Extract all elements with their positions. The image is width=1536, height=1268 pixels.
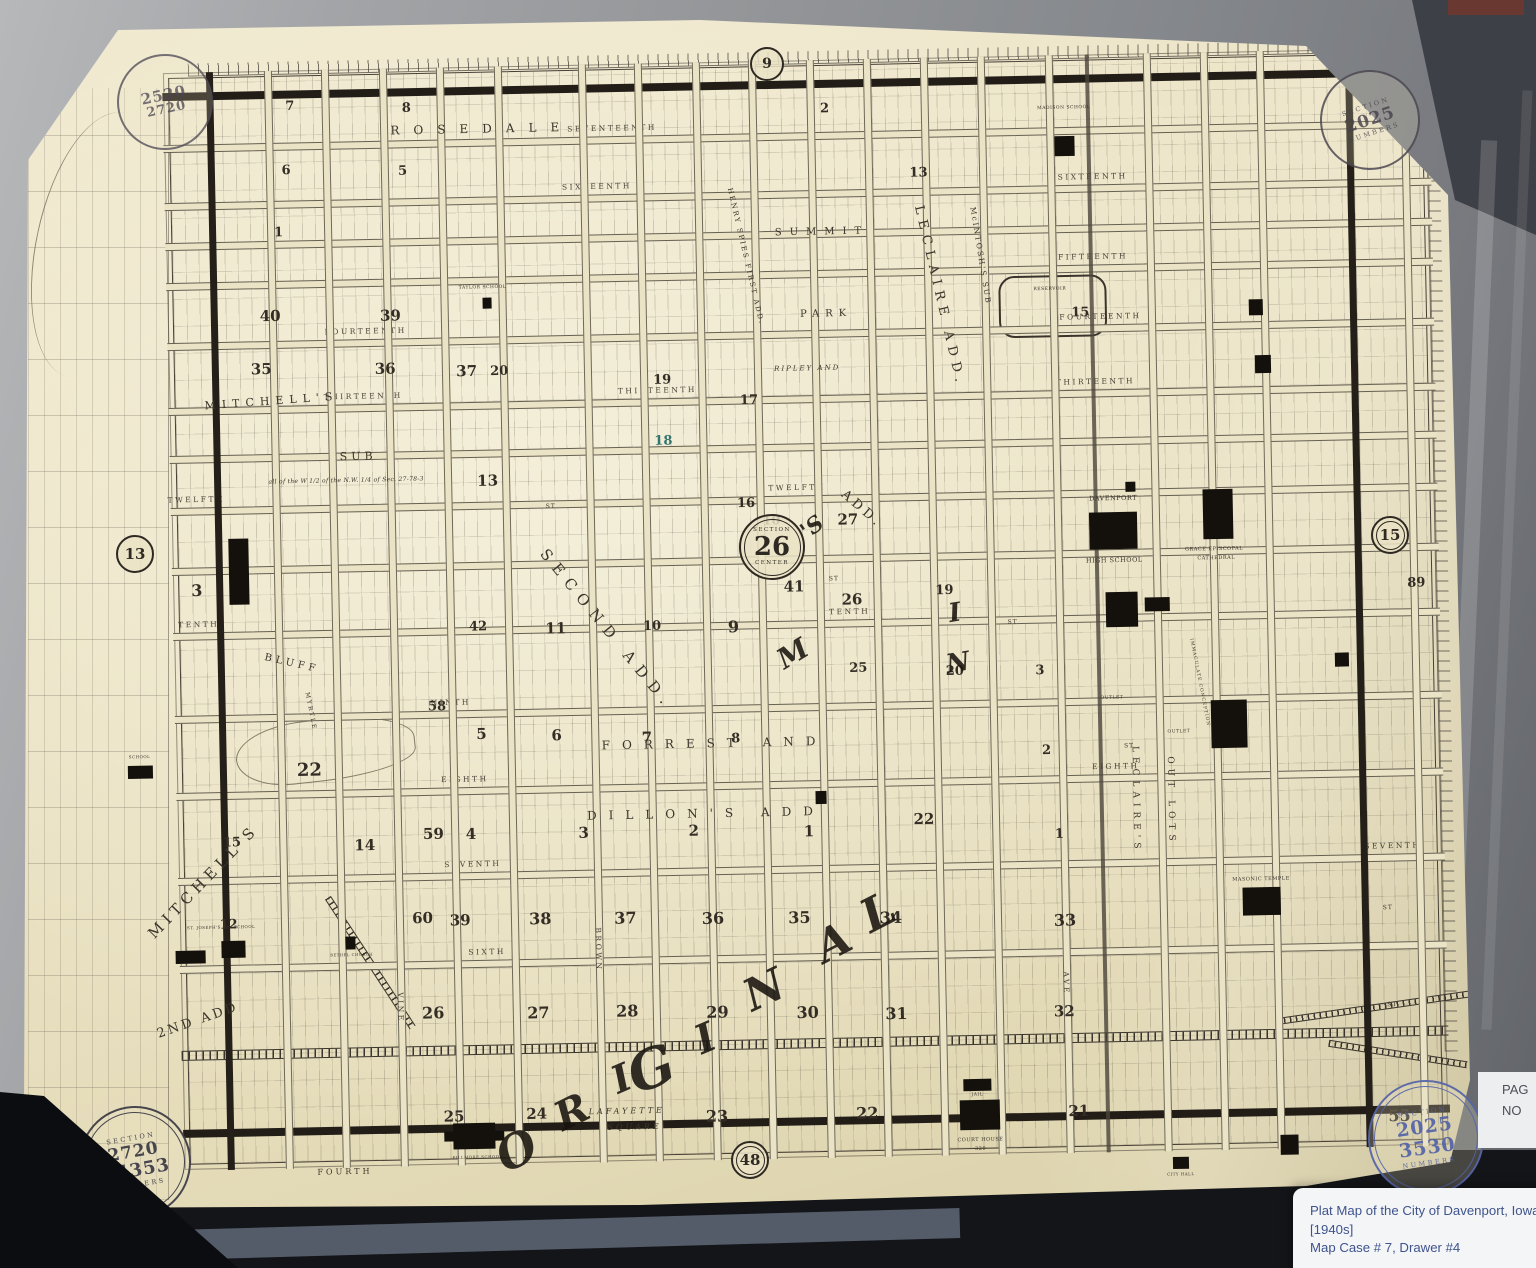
block-number: 8 [402, 100, 411, 115]
block-number: 39 [450, 911, 471, 929]
block-number: 9 [728, 617, 740, 636]
madison-school [1054, 136, 1074, 156]
section-marker-48: 48 [731, 1141, 769, 1179]
block-number: 20 [490, 364, 508, 379]
addition-label: IMMACULATE CONCEPTION [1188, 638, 1210, 727]
ornamental-script-letter: N [736, 959, 794, 1022]
building-label: CATHEDRAL [1197, 554, 1235, 561]
edge-label-line1: PAG [1502, 1080, 1536, 1101]
block-number: 6 [281, 163, 290, 178]
addition-label: SUMMIT [775, 225, 870, 238]
block-number: 27 [527, 1003, 550, 1022]
section-marker-9: 9 [750, 47, 784, 81]
street-minor [634, 63, 664, 1161]
street-minor [181, 1026, 1448, 1061]
addition-label: HENRY SPIES FIRST ADD. [726, 187, 766, 326]
marker-value: 13 [125, 547, 146, 562]
block-number: 42 [469, 620, 487, 635]
building-label: HIGH SCHOOL [1086, 556, 1143, 565]
block-number: 2 [688, 821, 699, 839]
street-label: SIXTH [468, 947, 506, 957]
block-number: 25 [849, 661, 867, 676]
block-number: 2 [1042, 743, 1051, 758]
section-marker-26: SECTION26CENTER [739, 514, 805, 580]
block-number: 28 [616, 1001, 639, 1020]
block-number: 59 [423, 824, 444, 842]
block-number: 13 [909, 165, 927, 180]
grace-episcopal-cathedral [1203, 488, 1234, 539]
addition-label: ST [546, 503, 556, 510]
block-number: 22 [297, 760, 322, 781]
block-number: 5 [476, 724, 487, 742]
street-minor [1345, 49, 1374, 1147]
building-label: DAVENPORT [1089, 494, 1137, 503]
street-minor [1256, 50, 1286, 1148]
addition-label: FOURTH [317, 1166, 372, 1176]
addition-label: ROSEDALE [390, 120, 573, 138]
street-label: AVE [1062, 972, 1071, 996]
catalog-label-card: Plat Map of the City of Davenport, Iowa … [1293, 1188, 1536, 1268]
block-number: 37 [614, 909, 637, 928]
street-sixteenth [164, 178, 1431, 211]
partial-edge-label: PAG NO [1478, 1072, 1536, 1148]
block-number: 29 [706, 1002, 729, 1021]
addition-label: all of the W 1/2 of the N.W. 1/4 of Sec.… [268, 475, 423, 485]
building-label: SCHOOL [129, 754, 151, 759]
building-label: ST. JOSEPH'S CH. SCHOOL [187, 923, 255, 929]
block-number: 13 [477, 471, 498, 489]
block-number: 36 [375, 360, 396, 378]
building-label: COURT HOUSE [957, 1137, 1003, 1144]
street-tenth [173, 607, 1440, 640]
section-marker-13: 13 [116, 535, 154, 573]
br-church [1281, 1135, 1299, 1155]
card-location: Map Case # 7, Drawer #4 [1310, 1239, 1536, 1258]
addition-label: ST [1124, 742, 1134, 749]
card-title: Plat Map of the City of Davenport, Iowa [1310, 1202, 1536, 1221]
addition-label: SQUARE [607, 1122, 661, 1132]
addition-label: SUB [340, 449, 377, 463]
street-label: BROWN [594, 927, 604, 971]
marker-value: 9 [762, 57, 772, 71]
map-paper: SEVENTEENTHSIXTEENTHSIXTEENTHFIFTEENTHFO… [0, 0, 1536, 1268]
street-minor [692, 62, 722, 1160]
block-number: 35 [788, 907, 811, 926]
ornamental-script-letter: M [771, 631, 815, 675]
block-number: 32 [1054, 1002, 1075, 1020]
street-minor [183, 1104, 1450, 1137]
block-number: 35 [251, 360, 272, 378]
block-number: 39 [380, 306, 401, 324]
jail [963, 1078, 991, 1091]
hs-annex [1125, 482, 1135, 492]
mitchell-building [228, 539, 249, 605]
street-seventeenth [163, 120, 1430, 153]
archive-photo: SEVENTEENTHSIXTEENTHSIXTEENTHFIFTEENTHFO… [0, 0, 1536, 1268]
sm-hall [1145, 597, 1170, 611]
addition-label: PARK [800, 308, 852, 320]
ornamental-script-letter: A [807, 912, 861, 973]
block-number: 7 [285, 99, 294, 114]
street-minor [321, 69, 351, 1167]
immaculate-conception [1211, 700, 1248, 749]
street-minor [1400, 48, 1430, 1146]
addition-label: ST [829, 575, 839, 582]
marker-ring [744, 519, 801, 576]
block-number: 60 [412, 909, 433, 927]
eighth-st-church [816, 791, 827, 804]
edge-label-line2: NO [1502, 1101, 1536, 1122]
street-fifteenth [166, 258, 1433, 291]
block-number: 21 [1068, 1102, 1089, 1120]
marker-ring [736, 1146, 765, 1175]
street-label: FIFTEENTH [1058, 252, 1128, 262]
building-label: 320 [975, 1146, 986, 1152]
street-minor [436, 67, 466, 1165]
block-number: 22 [856, 1104, 879, 1123]
block-number: 2 [820, 102, 829, 117]
addition-label: OUTLET [1167, 729, 1190, 734]
street-minor [977, 56, 1007, 1154]
block-number: 6 [551, 726, 562, 744]
building-label: CITY HALL [1167, 1171, 1195, 1177]
addition-label: OUTLET [1100, 695, 1123, 700]
block-number: 23 [706, 1107, 729, 1126]
street-label: SIXTEENTH [562, 181, 632, 191]
block-number: 19 [653, 373, 671, 388]
addition-label: ST [1383, 904, 1393, 911]
block-number: 40 [260, 306, 281, 324]
addition-label: RIPLEY AND [774, 363, 840, 372]
addition-label: OUT LOTS [1164, 756, 1176, 846]
addition-label: ST [1008, 618, 1018, 625]
davenport-high-school [1089, 512, 1138, 550]
building-label: MADISON SCHOOL [1037, 105, 1090, 111]
marker-ring [1376, 521, 1405, 550]
right-church-1 [1249, 299, 1263, 315]
building-label: JAIL [971, 1092, 983, 1097]
school-annex [1106, 591, 1139, 627]
st-josephs-church [175, 951, 205, 965]
street-label: SEVENTH [1364, 840, 1421, 850]
street-label: EIGHTH [441, 774, 489, 784]
block-number: 1 [1055, 826, 1064, 841]
city-hall [1172, 1157, 1188, 1169]
block-number: 58 [428, 699, 446, 714]
addition-label: FORREST AND [602, 734, 828, 753]
block-number: 5 [398, 163, 407, 178]
block-number: 11 [545, 619, 566, 637]
building-label: FILLMORE SCHOOL [452, 1154, 502, 1160]
block-number: 3 [1035, 663, 1044, 678]
section-marker-15: 15 [1371, 516, 1409, 554]
block-number: 19 [935, 583, 953, 598]
block-number: 4 [466, 825, 477, 843]
addition-label: LECLAIRE'S [1129, 746, 1141, 854]
street-label: THIRTEENTH [1056, 376, 1135, 387]
block-number: 89 [1407, 576, 1425, 591]
block-number: 18 [654, 434, 672, 449]
street-label: VINE [396, 992, 406, 1023]
block-number: 38 [529, 909, 552, 928]
block-number: 41 [783, 577, 804, 595]
block-number: 24 [526, 1104, 547, 1122]
street-ninth [174, 691, 1441, 724]
street-minor [494, 66, 524, 1164]
right-church-2 [1255, 355, 1271, 373]
ornamental-script-letter: N [944, 647, 972, 680]
block-number: 3 [191, 581, 203, 600]
masonic-temple [1242, 887, 1281, 916]
block-number: 15 [1071, 305, 1089, 320]
bethel-church [345, 937, 355, 950]
addition-label: ST [1387, 1001, 1397, 1008]
addition-label: BLUFF [264, 652, 321, 675]
taylor-school [483, 297, 492, 308]
block-number: 33 [1054, 911, 1077, 930]
card-date: [1940s] [1310, 1221, 1536, 1240]
st-josephs-school [221, 940, 245, 957]
building-label: MASONIC TEMPLE [1232, 876, 1290, 883]
addition-label: RESERVOIR [1033, 286, 1066, 292]
block-number: 14 [354, 836, 375, 854]
top-right-red-sliver [1448, 0, 1524, 15]
block-number: 31 [885, 1004, 908, 1023]
right-church-3 [1335, 652, 1349, 666]
plat: SEVENTEENTHSIXTEENTHSIXTEENTHFIFTEENTHFO… [168, 53, 1444, 1165]
block-number: 3 [578, 823, 589, 841]
street-minor [1200, 52, 1230, 1150]
block-number: 36 [702, 908, 725, 927]
ornamental-script-letter: R [546, 1083, 597, 1140]
block-number: 30 [796, 1003, 819, 1022]
street-label: SIXTEENTH [1058, 171, 1128, 181]
building-label: GRACE EPISCOPAL [1185, 545, 1243, 552]
block-number: 1 [804, 822, 815, 840]
west-school [128, 765, 153, 778]
addition-label: LAFAYETTE [589, 1105, 665, 1116]
street-label: TENTH [178, 619, 219, 629]
building-label: BETHEL CHURCH [330, 952, 373, 958]
block-number: 17 [740, 393, 758, 408]
street-label: FOURTEENTH [324, 326, 406, 337]
block-number: 26 [422, 1003, 445, 1022]
court-house [960, 1100, 1001, 1131]
tick-strip-top [187, 39, 1401, 76]
addition-label: DILLON'S ADD [587, 804, 825, 823]
building-label: TAYLOR SCHOOL [459, 284, 507, 290]
block-number: 37 [456, 362, 477, 380]
block-number: 1 [274, 225, 283, 240]
block-number: 22 [913, 810, 934, 828]
block-number: 16 [737, 496, 755, 511]
block-number: 26 [841, 590, 862, 608]
block-number: 10 [643, 618, 661, 633]
